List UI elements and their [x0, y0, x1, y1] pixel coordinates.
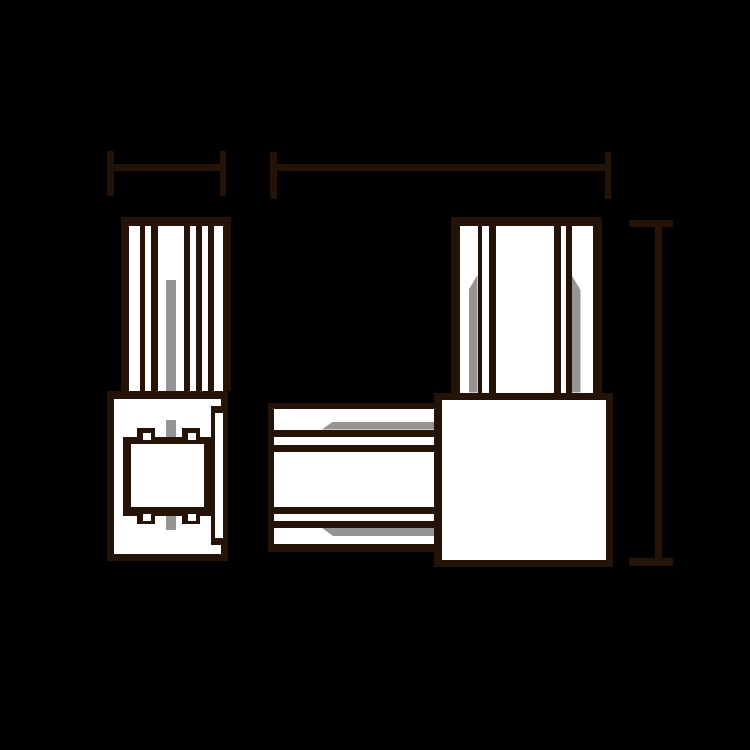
width-dim-right-bar — [270, 164, 611, 171]
width-dim-right-tick-end — [605, 152, 612, 199]
width-dim-left-tick-start — [107, 151, 114, 196]
height-dim-tick-top — [629, 220, 673, 227]
width-dim-right-tick-start — [270, 152, 277, 199]
height-dim-tick-bottom — [629, 558, 673, 566]
technical-drawing-canvas — [0, 0, 750, 750]
width-dim-left-bar — [107, 164, 226, 171]
height-dim-line — [655, 224, 662, 562]
width-dim-left-tick-end — [220, 151, 227, 196]
dimension-lines — [0, 0, 750, 750]
